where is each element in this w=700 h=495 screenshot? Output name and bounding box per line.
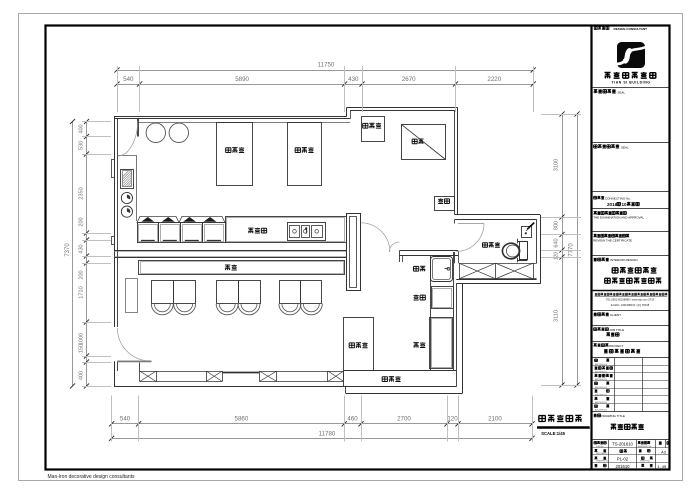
svg-text:ABCDEFG-N: ABCDEFG-N — [595, 409, 607, 412]
svg-text:CLIENT: CLIENT — [610, 313, 621, 317]
svg-text:2350: 2350 — [79, 187, 85, 199]
svg-text:ABCDEFG-N: ABCDEFG-N — [595, 363, 607, 366]
svg-text:DRAWING No.: DRAWING No. — [596, 460, 610, 463]
svg-text:430: 430 — [79, 244, 85, 253]
svg-text:2220: 2220 — [487, 76, 501, 83]
svg-text:2100: 2100 — [488, 416, 502, 423]
svg-text:200: 200 — [79, 217, 85, 226]
svg-text:AMENDED No.: AMENDED No. — [638, 445, 652, 448]
svg-text:SCALE:1/45: SCALE:1/45 — [541, 431, 565, 436]
svg-text:JOB TITLE: JOB TITLE — [609, 328, 624, 332]
svg-text:DRAWING TITLE: DRAWING TITLE — [602, 414, 625, 418]
svg-text:PL-02: PL-02 — [617, 457, 629, 462]
svg-text:3110: 3110 — [554, 310, 560, 322]
svg-text:SEAL: SEAL — [618, 91, 626, 95]
svg-text:7770: 7770 — [569, 243, 575, 257]
svg-text:3100: 3100 — [554, 159, 560, 171]
svg-text:2670: 2670 — [402, 76, 416, 83]
svg-text:200: 200 — [79, 270, 85, 279]
svg-text:5860: 5860 — [235, 416, 249, 423]
svg-text:TS-201610: TS-201610 — [612, 442, 633, 447]
svg-text:CONNECTING No.: CONNECTING No. — [605, 196, 631, 200]
svg-text:SPECIALITY: SPECIALITY — [596, 452, 608, 455]
svg-text:SHEET No.: SHEET No. — [640, 461, 651, 463]
svg-text:1710: 1710 — [79, 286, 85, 298]
svg-text:JOB No.: JOB No. — [596, 446, 604, 448]
svg-text:SEAL: SEAL — [621, 145, 629, 149]
svg-text:ABCDEFG-N: ABCDEFG-N — [595, 401, 607, 404]
svg-text:TIAN SI BUILDING: TIAN SI BUILDING — [612, 81, 651, 85]
svg-text:430: 430 — [348, 76, 359, 83]
svg-text:2016: 2016 — [607, 202, 618, 207]
svg-text:11750: 11750 — [318, 62, 335, 69]
svg-text:E-MAIL: 2301588115 / QQ 6515: E-MAIL: 2301588115 / QQ 65158 — [611, 303, 650, 307]
svg-text:ABCDEFG-N: ABCDEFG-N — [595, 371, 607, 374]
svg-text:INTERIOR DESIGN: INTERIOR DESIGN — [610, 258, 638, 262]
svg-text:540: 540 — [123, 76, 134, 83]
svg-text:THE EXAMINATION AND APPROVAL: THE EXAMINATION AND APPROVAL — [593, 216, 644, 220]
svg-text:ABCDEFG-N: ABCDEFG-N — [595, 386, 607, 389]
svg-text:540: 540 — [120, 416, 131, 423]
svg-text:11780: 11780 — [319, 431, 336, 438]
svg-text:1, 45: 1, 45 — [657, 464, 667, 469]
svg-text:201610: 201610 — [616, 464, 631, 469]
svg-text:A3: A3 — [661, 450, 666, 454]
svg-text:PROJECT: PROJECT — [609, 344, 623, 348]
svg-text:800: 800 — [554, 221, 560, 230]
svg-text:400: 400 — [79, 124, 85, 133]
svg-text:460: 460 — [347, 416, 358, 423]
svg-text:DESIGN CONSULTANT: DESIGN CONSULTANT — [614, 27, 648, 31]
svg-text:120: 120 — [447, 416, 458, 423]
svg-text:530: 530 — [79, 141, 85, 150]
svg-text:ABCDEFG-N: ABCDEFG-N — [595, 378, 607, 381]
svg-text:640: 640 — [554, 238, 560, 247]
svg-text:ABCDEFG-N: ABCDEFG-N — [595, 393, 607, 396]
svg-text:1000: 1000 — [79, 333, 85, 345]
svg-text:7370: 7370 — [65, 243, 71, 257]
svg-text:2700: 2700 — [397, 416, 411, 423]
svg-text:120: 120 — [554, 252, 560, 261]
svg-text:REVIEW THE CERTIFICATE: REVIEW THE CERTIFICATE — [593, 239, 632, 243]
svg-text:Man-lron decorative design con: Man-lron decorative design consultants — [48, 474, 135, 480]
svg-text:5890: 5890 — [235, 76, 249, 83]
svg-text:150: 150 — [79, 344, 85, 353]
svg-text:400: 400 — [79, 371, 85, 380]
svg-text:TEL:0551-65158888 / www.tsjz.: TEL:0551-65158888 / www.tsjz.com 2F18 — [606, 298, 655, 302]
svg-text:10: 10 — [622, 202, 628, 207]
